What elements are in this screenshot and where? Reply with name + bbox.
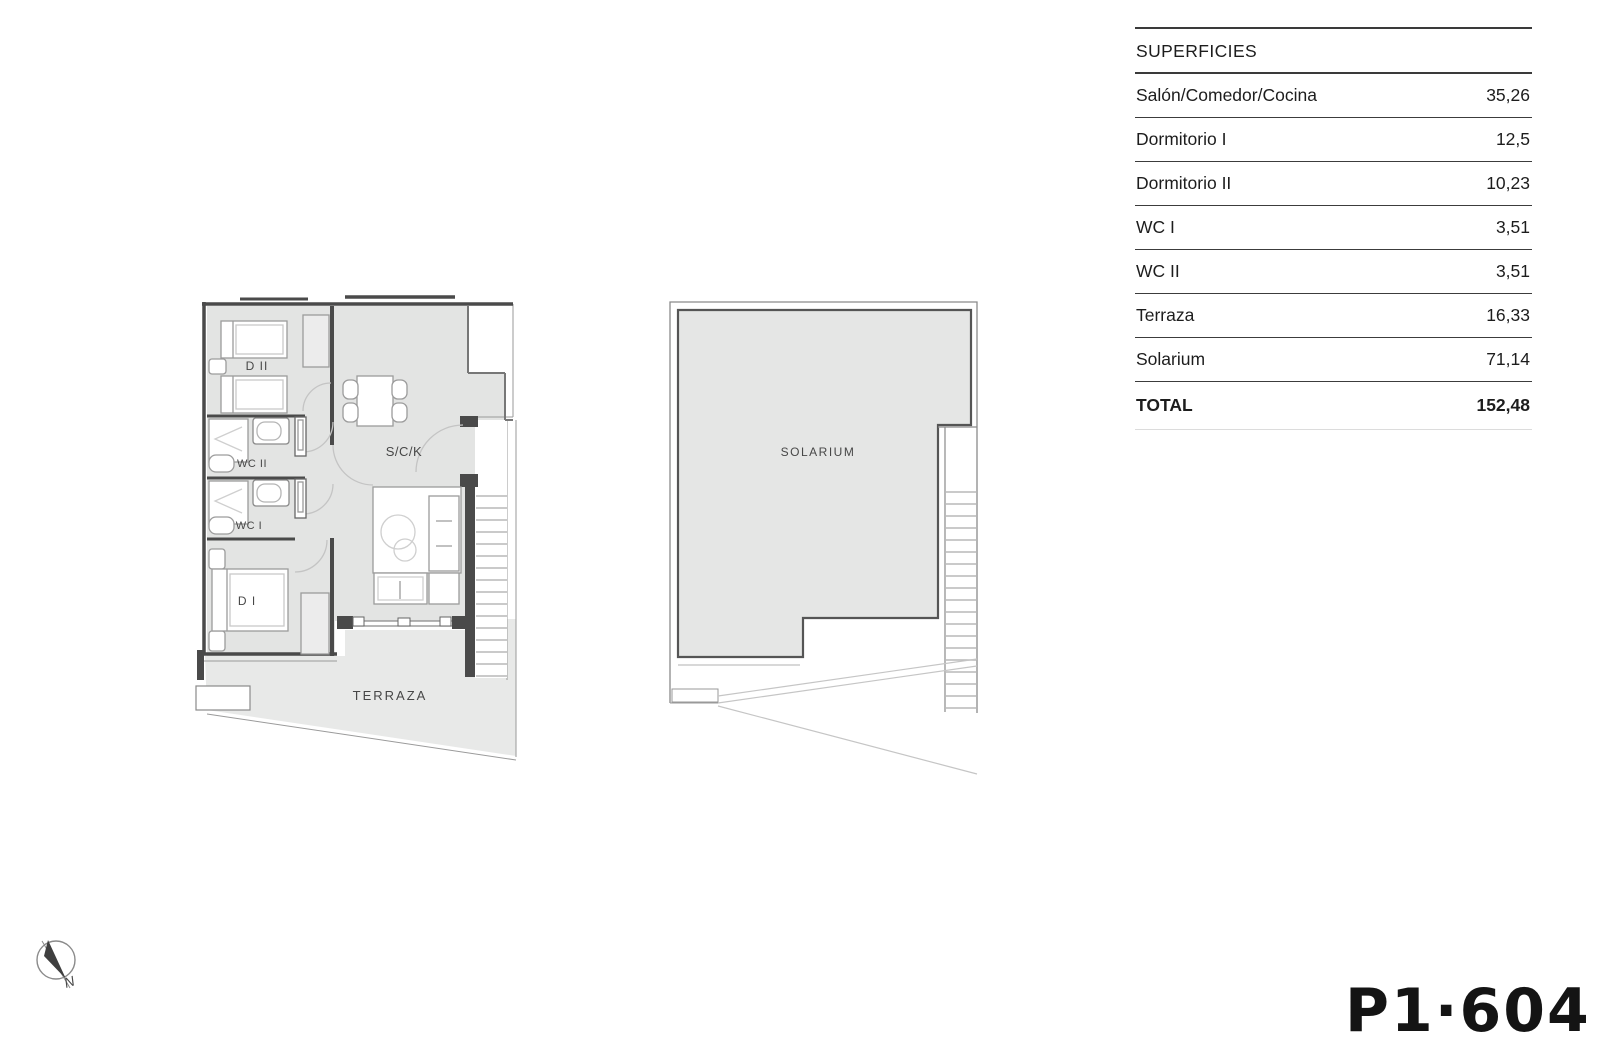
solarium-stairs: [945, 427, 976, 712]
room-label-d1: D I: [238, 594, 256, 608]
sheet-code: P1·604: [1345, 976, 1591, 1046]
chair: [343, 403, 358, 422]
roof-slope-lines: [718, 659, 977, 774]
kitchen-column: [429, 496, 459, 571]
solarium-floor: [678, 310, 971, 657]
wardrobe: [301, 593, 329, 654]
room-label-solarium: SOLARIUM: [781, 445, 856, 459]
wardrobe: [303, 315, 329, 367]
kitchen-block: [373, 487, 461, 604]
dining-table: [357, 376, 393, 426]
nightstand: [209, 631, 225, 651]
solarium-bottom-details: [670, 665, 800, 703]
nightstand: [209, 359, 226, 374]
nightstand: [209, 549, 225, 569]
plan-apartment: D II WC II WC I D I S/C/K TERRAZA: [196, 297, 516, 760]
sink: [209, 455, 234, 472]
chair: [343, 380, 358, 399]
kitchen-drawer: [429, 573, 459, 604]
chair: [392, 403, 407, 422]
room-label-terraza: TERRAZA: [353, 688, 428, 703]
parapet: [196, 686, 250, 710]
room-label-d2: D II: [246, 359, 269, 373]
north-compass-icon: N: [37, 940, 77, 991]
room-label-wc1: WC I: [236, 520, 262, 532]
stairs: [475, 420, 507, 678]
room-label-sck: S/C/K: [386, 444, 422, 459]
stair-treads: [946, 492, 976, 708]
chair: [392, 380, 407, 399]
compass-north-label: N: [62, 972, 77, 991]
room-label-wc2: WC II: [237, 458, 267, 470]
floorplan-drawing: D II WC II WC I D I S/C/K TERRAZA SOLARI…: [0, 0, 1600, 1024]
sink: [209, 517, 234, 534]
plan-solarium: SOLARIUM: [670, 302, 977, 774]
